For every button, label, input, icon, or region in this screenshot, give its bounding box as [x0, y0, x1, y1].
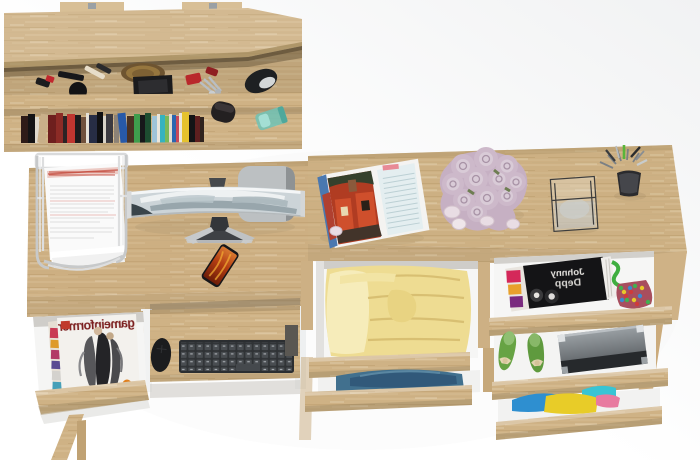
svg-text:Depp: Depp — [555, 276, 582, 289]
